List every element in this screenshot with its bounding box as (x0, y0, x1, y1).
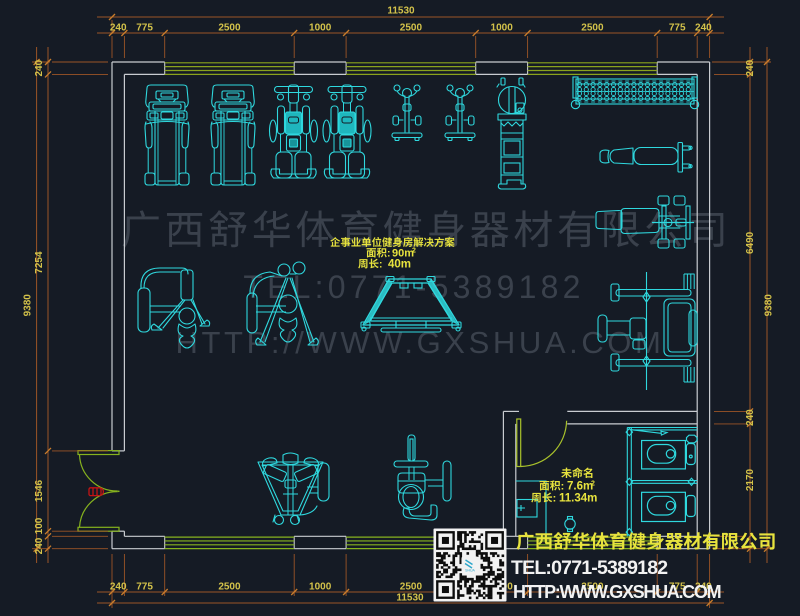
svg-text:9380: 9380 (764, 294, 775, 317)
svg-text:1000: 1000 (309, 581, 332, 592)
svg-text:1000: 1000 (491, 22, 514, 33)
svg-text:2500: 2500 (400, 581, 423, 592)
svg-text:240: 240 (695, 22, 712, 33)
svg-text:TEL:0771-5389182: TEL:0771-5389182 (511, 557, 668, 579)
svg-text:775: 775 (136, 22, 153, 33)
svg-text:240: 240 (745, 409, 756, 426)
svg-text:240: 240 (34, 537, 45, 554)
svg-text:40m: 40m (388, 259, 411, 271)
svg-text:6490: 6490 (745, 231, 756, 254)
svg-text:1546: 1546 (34, 479, 45, 502)
svg-text:240: 240 (110, 581, 127, 592)
svg-text:775: 775 (136, 581, 153, 592)
svg-text:100: 100 (34, 517, 45, 534)
svg-text:240: 240 (34, 59, 45, 76)
svg-text:2170: 2170 (745, 468, 756, 491)
svg-text:HTTP://WWW.GXSHUA.COM: HTTP://WWW.GXSHUA.COM (176, 325, 665, 360)
svg-text:775: 775 (669, 22, 686, 33)
svg-text:11.34m: 11.34m (559, 493, 597, 505)
svg-text:7.6m: 7.6m (567, 481, 593, 493)
svg-text:2500: 2500 (581, 22, 604, 33)
svg-text::: : (379, 259, 383, 271)
svg-text:HTTP:WWW.GXSHUA.COM: HTTP:WWW.GXSHUA.COM (513, 582, 721, 602)
svg-text::: : (561, 481, 565, 493)
svg-text:2500: 2500 (400, 22, 423, 33)
svg-text:2500: 2500 (218, 581, 241, 592)
svg-text::: : (553, 493, 557, 505)
svg-text:240: 240 (745, 59, 756, 76)
svg-text:2: 2 (412, 248, 416, 255)
svg-text:11530: 11530 (396, 593, 424, 604)
svg-text:11530: 11530 (387, 6, 415, 17)
svg-text:9380: 9380 (23, 294, 34, 317)
svg-text:2500: 2500 (218, 22, 241, 33)
svg-text:SHUA: SHUA (465, 569, 475, 573)
svg-text:1000: 1000 (309, 22, 332, 33)
svg-text:2: 2 (591, 481, 595, 488)
svg-text:240: 240 (110, 22, 127, 33)
svg-text:7254: 7254 (34, 251, 45, 274)
